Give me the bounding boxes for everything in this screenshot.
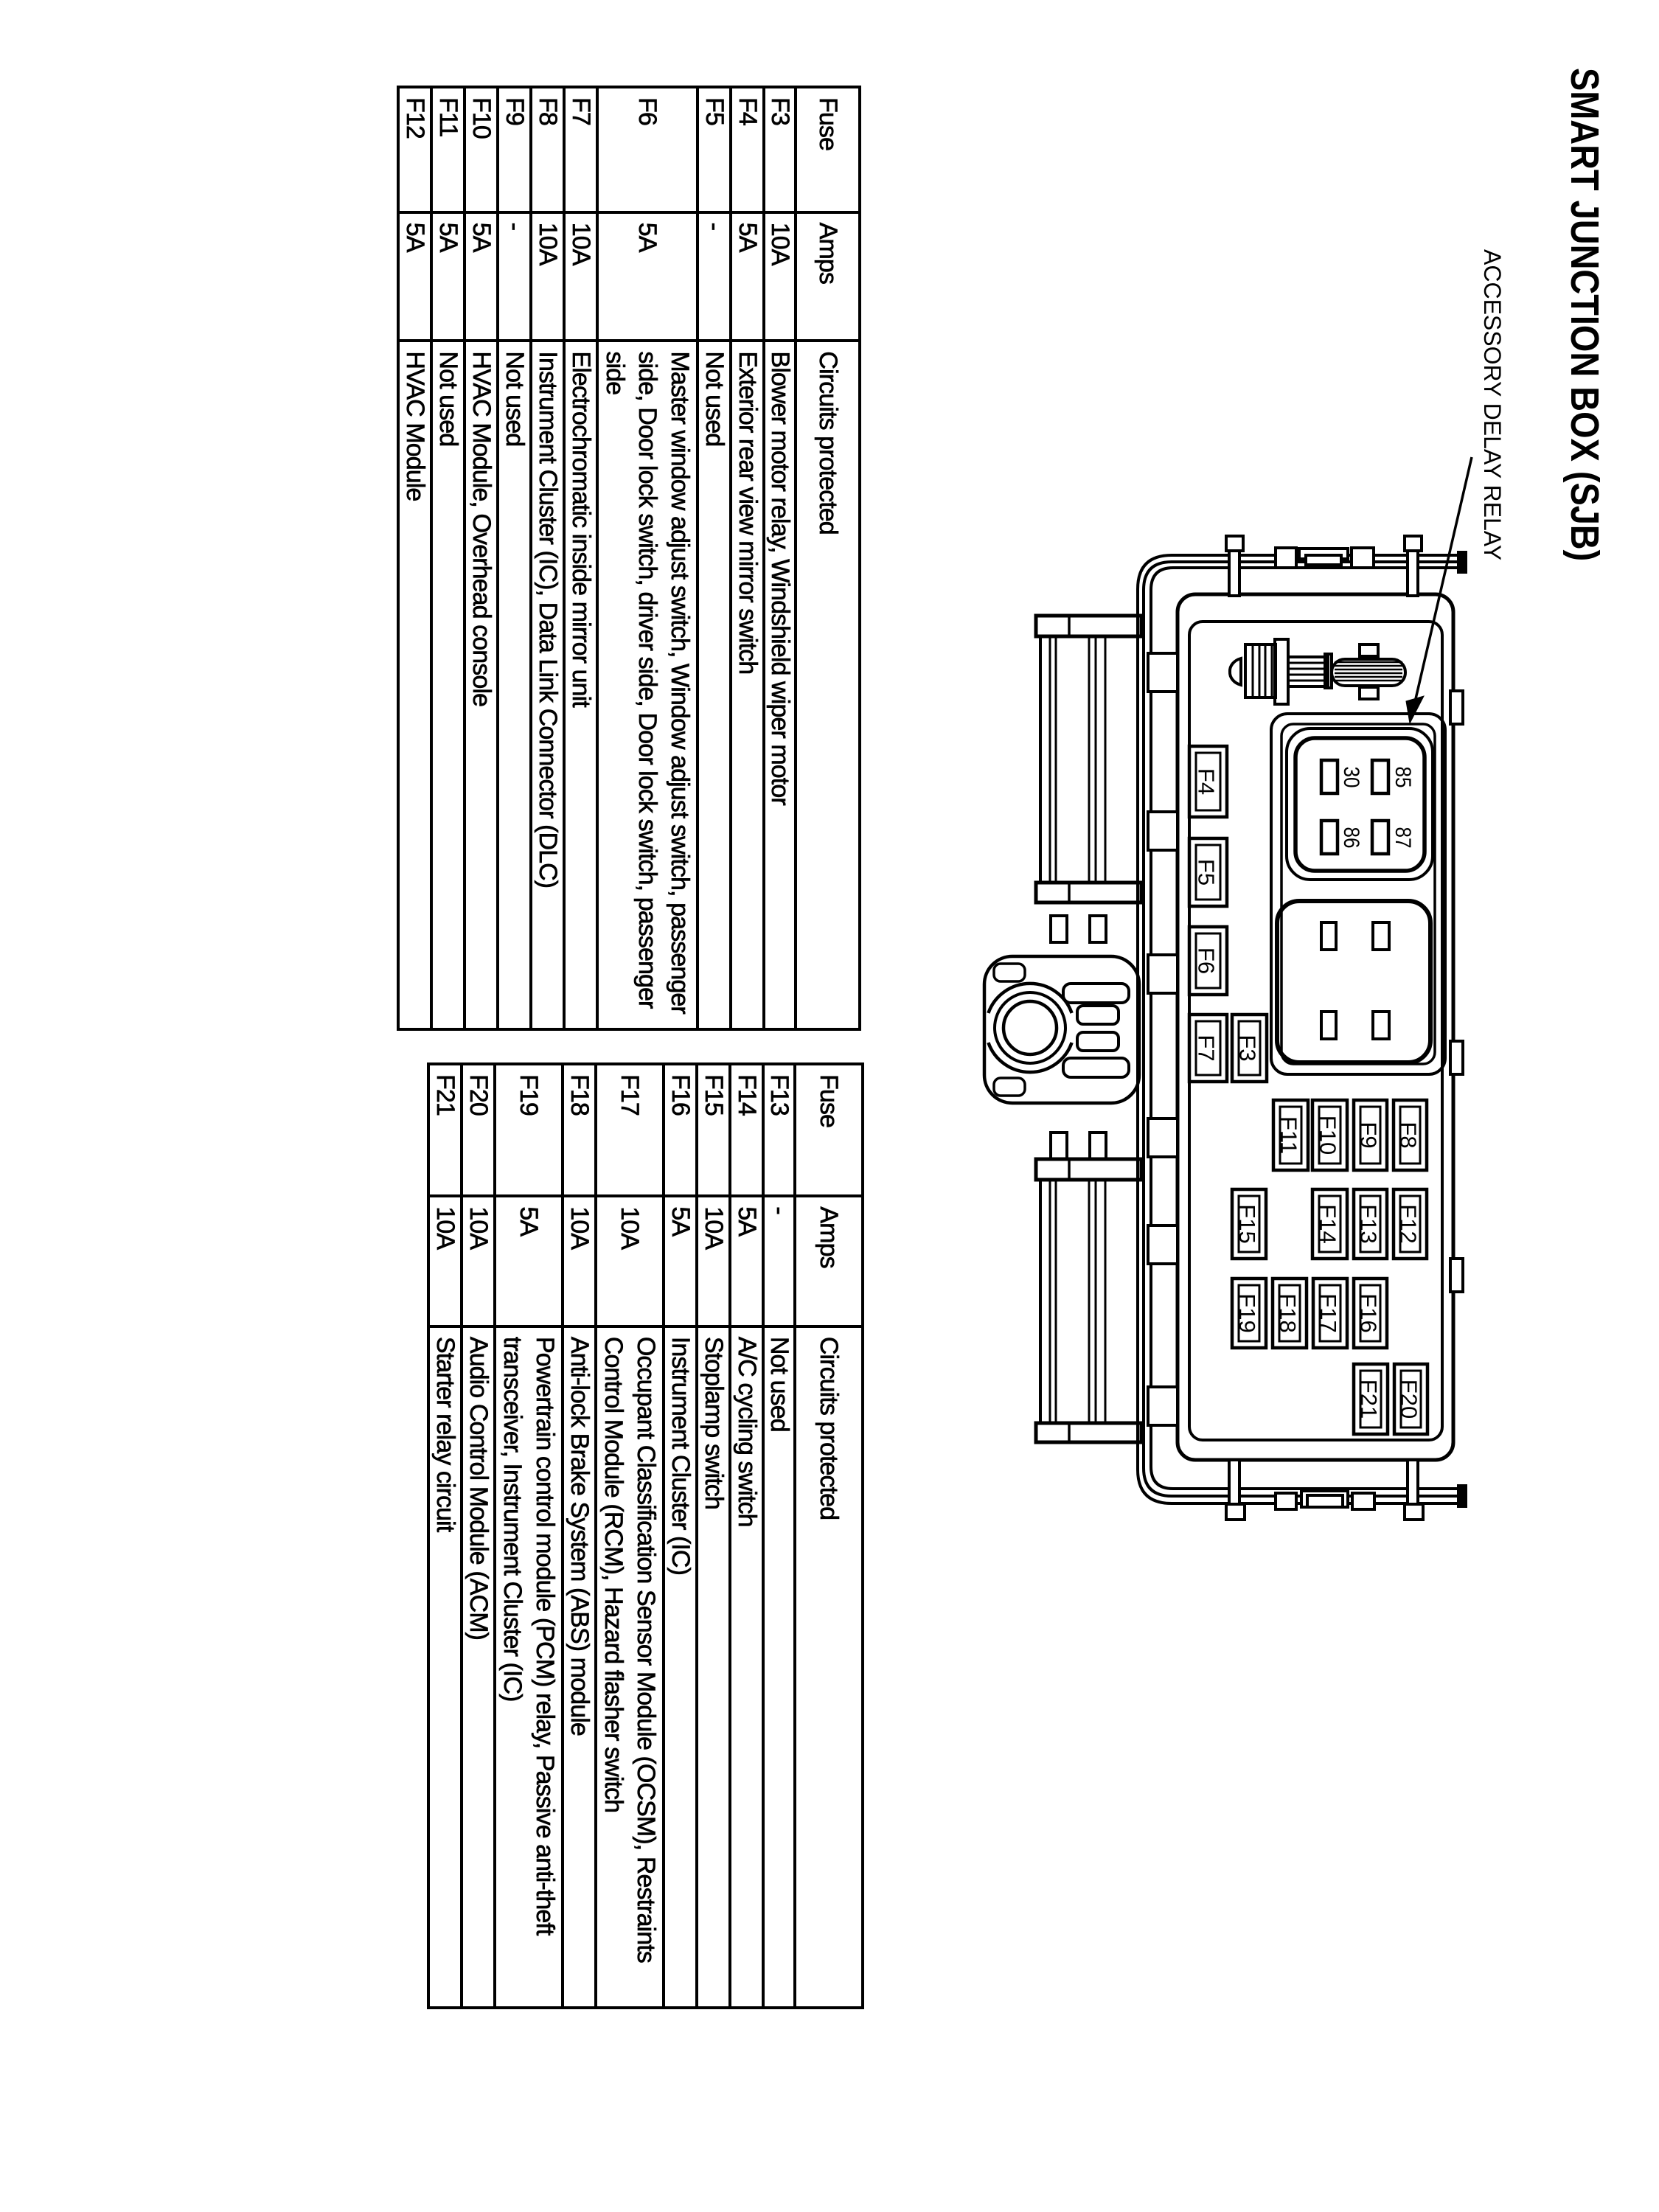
svg-text:F19: F19 <box>1234 1293 1260 1332</box>
svg-text:F11: F11 <box>1276 1116 1302 1154</box>
svg-text:F10: F10 <box>1315 1116 1341 1155</box>
svg-text:F20: F20 <box>1397 1380 1422 1419</box>
svg-text:F4: F4 <box>1194 768 1220 795</box>
svg-text:F12: F12 <box>1396 1204 1422 1243</box>
svg-text:F7: F7 <box>1194 1034 1220 1061</box>
svg-text:F5: F5 <box>1194 859 1220 886</box>
svg-text:F17: F17 <box>1315 1293 1341 1332</box>
svg-text:F16: F16 <box>1356 1293 1382 1332</box>
svg-text:87: 87 <box>1391 827 1415 849</box>
svg-text:85: 85 <box>1391 767 1415 788</box>
svg-text:F14: F14 <box>1315 1204 1341 1243</box>
svg-text:86: 86 <box>1339 827 1363 849</box>
svg-text:30: 30 <box>1339 767 1363 788</box>
svg-text:F3: F3 <box>1235 1034 1261 1061</box>
svg-text:F8: F8 <box>1396 1121 1422 1148</box>
svg-text:F6: F6 <box>1194 947 1220 974</box>
svg-text:F21: F21 <box>1356 1380 1382 1419</box>
svg-text:F15: F15 <box>1234 1204 1260 1243</box>
svg-text:F13: F13 <box>1356 1204 1382 1243</box>
svg-text:F18: F18 <box>1275 1293 1301 1332</box>
svg-text:F9: F9 <box>1356 1121 1382 1148</box>
